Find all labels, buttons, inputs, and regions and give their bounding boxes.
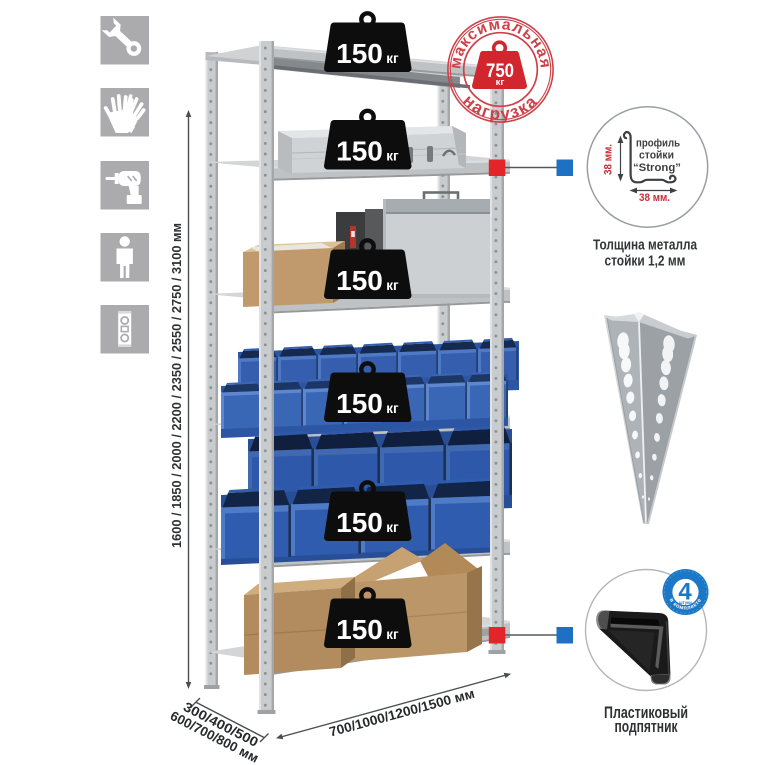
- svg-text:кг: кг: [386, 401, 399, 416]
- svg-text:150: 150: [336, 38, 383, 69]
- svg-text:150: 150: [336, 265, 383, 296]
- svg-text:38 мм.: 38 мм.: [603, 144, 615, 175]
- svg-text:кг: кг: [386, 51, 399, 66]
- svg-text:кг: кг: [496, 77, 505, 88]
- svg-text:кг: кг: [386, 520, 399, 535]
- svg-text:кг: кг: [386, 149, 399, 164]
- svg-text:Толщина металла: Толщина металла: [593, 237, 698, 254]
- svg-text:150: 150: [336, 614, 383, 645]
- svg-text:38 мм.: 38 мм.: [639, 192, 670, 204]
- svg-text:стойки 1,2 мм: стойки 1,2 мм: [605, 253, 686, 270]
- svg-text:700/1000/1200/1500 мм: 700/1000/1200/1500 мм: [327, 686, 476, 740]
- svg-text:кг: кг: [386, 627, 399, 642]
- svg-text:подпятник: подпятник: [615, 718, 679, 736]
- svg-text:стойки: стойки: [639, 150, 674, 162]
- svg-text:150: 150: [336, 388, 383, 419]
- svg-text:штуки: штуки: [679, 600, 692, 605]
- svg-text:1600 / 1850 / 2000 / 2200 / 23: 1600 / 1850 / 2000 / 2200 / 2350 / 2550 …: [170, 223, 184, 548]
- svg-text:кг: кг: [386, 278, 399, 293]
- svg-text:150: 150: [336, 507, 383, 538]
- svg-text:150: 150: [336, 136, 383, 167]
- svg-text:“Strong”: “Strong”: [633, 162, 681, 174]
- svg-text:профиль: профиль: [636, 138, 680, 150]
